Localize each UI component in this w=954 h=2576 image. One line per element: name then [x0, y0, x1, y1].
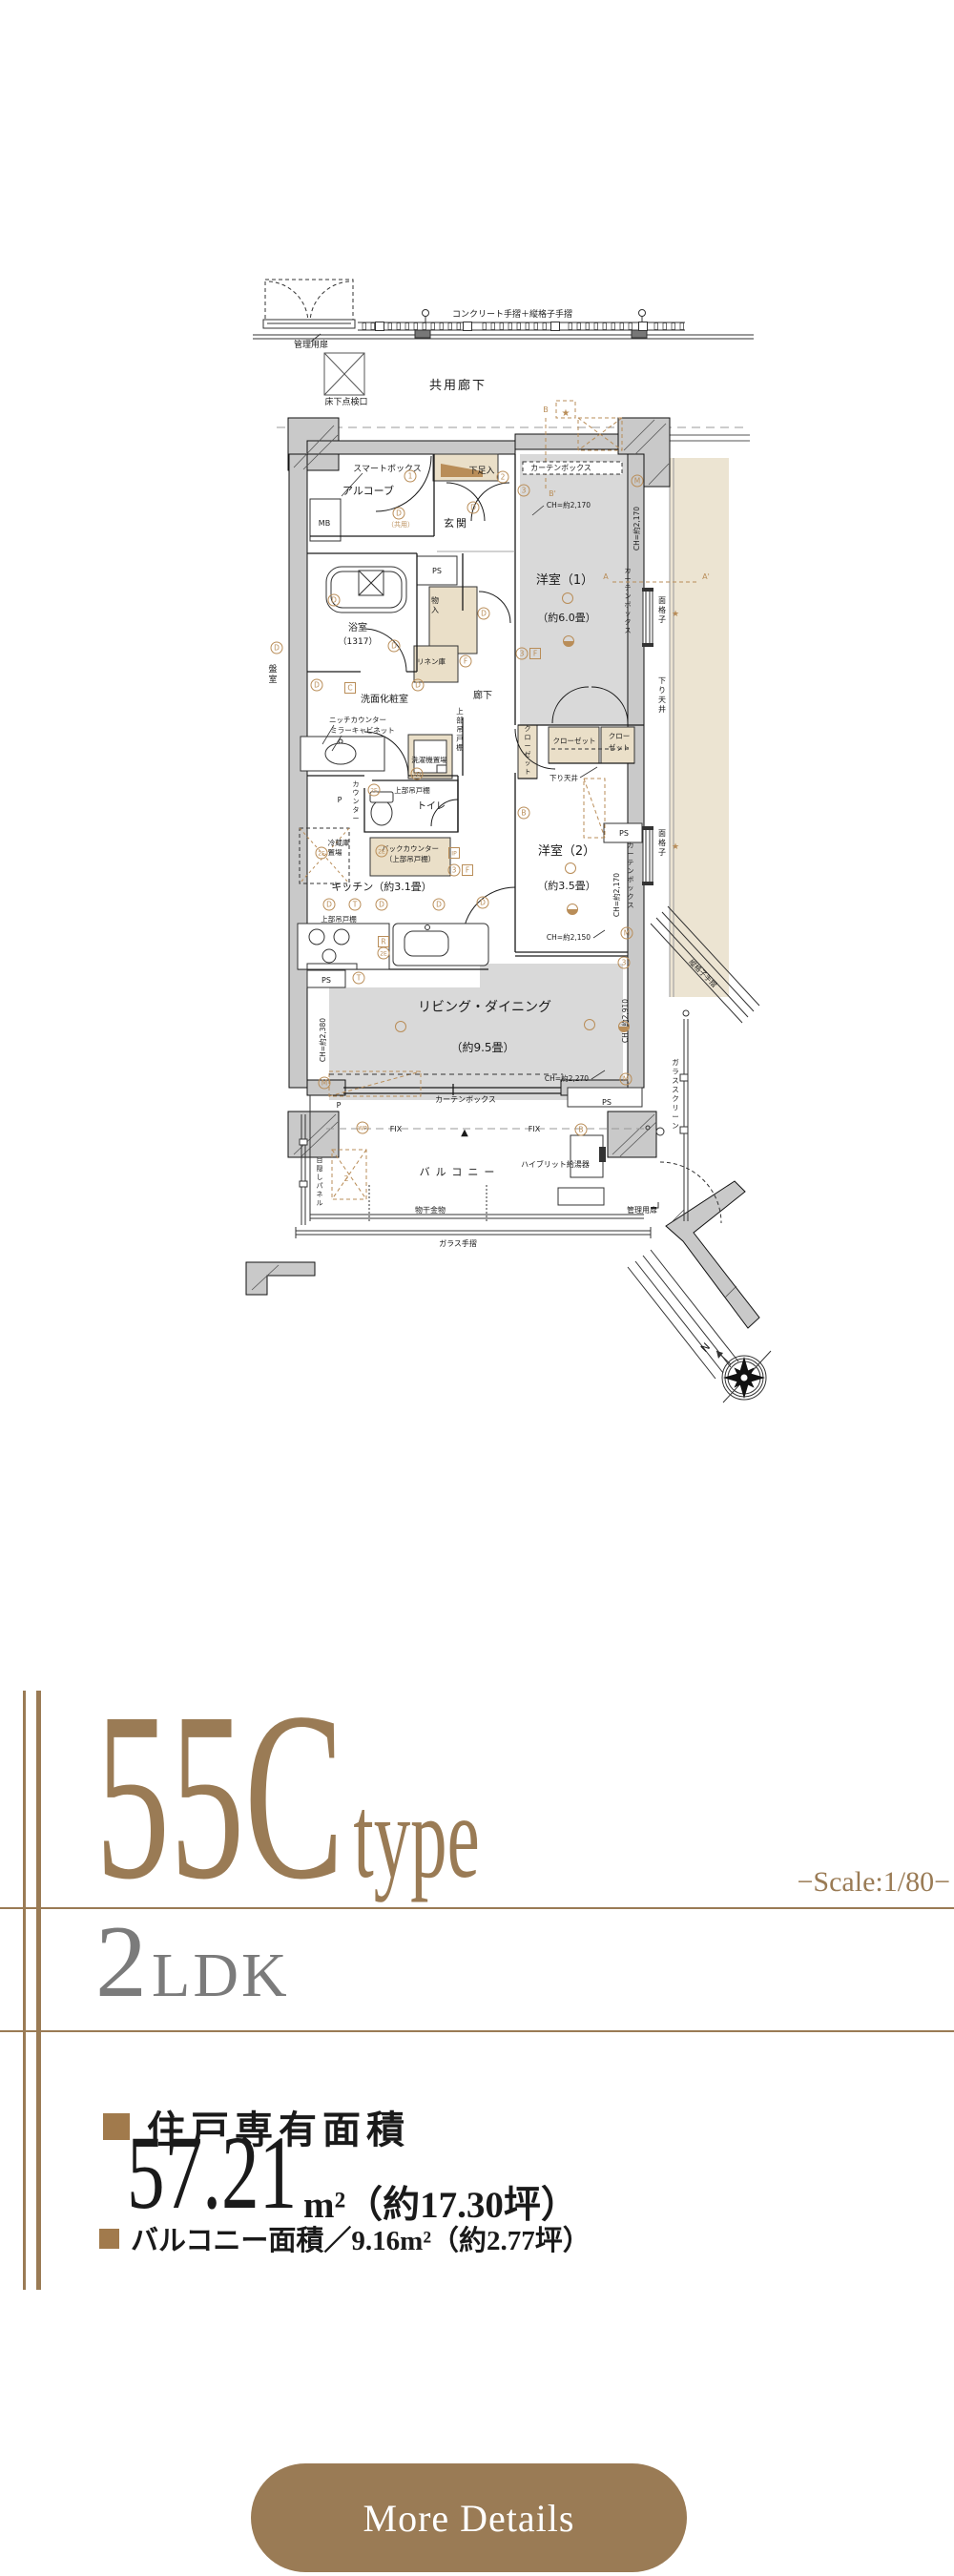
- floorplan-marker: D: [467, 502, 479, 513]
- divider-rule: [0, 2030, 954, 2032]
- floorplan-label: リビング・ダイニング: [418, 1000, 551, 1015]
- floorplan-label: ガラススクリーン: [672, 1057, 679, 1131]
- floorplan-label: （約9.5畳）: [450, 1040, 514, 1054]
- balcony-area-row: バルコニー面積／9.16m²（約2.77坪）: [99, 2218, 591, 2258]
- layout-type-letters: LDK: [152, 1944, 290, 2007]
- floorplan-marker: 1: [404, 470, 416, 482]
- svg-text:1: 1: [408, 472, 413, 481]
- floorplan-label: CH=約2,150: [547, 932, 591, 942]
- floorplan-label: CH=約2,380: [318, 1018, 327, 1062]
- svg-text:2D: 2D: [413, 772, 422, 779]
- svg-text:B: B: [578, 1126, 583, 1134]
- floorplan-label: カーテンボックス: [530, 464, 591, 472]
- floorplan-marker: B: [575, 1124, 587, 1135]
- floorplan-label: 洋室（2）: [538, 843, 595, 859]
- svg-text:D: D: [274, 644, 280, 653]
- floorplan-label: 目隠しパネル: [317, 1156, 323, 1207]
- floorplan-marker: D: [376, 899, 387, 910]
- svg-text:IP: IP: [451, 851, 457, 858]
- square-bullet-icon: [99, 2229, 119, 2249]
- floorplan-label: B': [549, 489, 556, 498]
- floorplan-label: 下足入: [468, 466, 494, 476]
- floorplan-marker: D: [393, 508, 404, 519]
- floorplan-label: ハイブリット給湯器: [521, 1159, 590, 1169]
- floorplan-label: ★: [672, 842, 679, 852]
- decor-vertical-line: [23, 1691, 26, 2290]
- floorplan-label: ★: [562, 408, 570, 419]
- floorplan-label: 管理用扉: [294, 339, 328, 350]
- floorplan-label: CH=約2,910: [620, 999, 630, 1043]
- floorplan-label: 廊下: [473, 689, 492, 701]
- svg-text:F: F: [466, 866, 469, 875]
- floor-plan-page: コンクリート手摺＋縦格子手摺管理用扉床下点検口共用廊下スマートボックスアルコーブ…: [0, 0, 954, 2576]
- svg-text:D: D: [391, 642, 397, 651]
- floorplan-label: 下り天井: [658, 676, 666, 714]
- floorplan-label: 共用廊下: [429, 378, 487, 393]
- svg-text:3: 3: [520, 650, 525, 658]
- layout-type-number: 2: [95, 1911, 147, 2014]
- svg-text:F: F: [464, 657, 467, 666]
- floorplan-marker: WP: [357, 1122, 368, 1133]
- svg-text:D: D: [314, 681, 320, 690]
- layout-type: 2 LDK: [95, 1911, 290, 2014]
- floorplan-label: FIX: [390, 1125, 403, 1133]
- svg-text:D: D: [480, 899, 486, 907]
- svg-text:D: D: [326, 901, 332, 909]
- floorplan-label: カーテンボックス: [435, 1095, 496, 1104]
- svg-text:M: M: [624, 929, 630, 938]
- floorplan-marker: 2E: [316, 847, 327, 859]
- floorplan-label: キッチン（約3.1畳）: [331, 880, 432, 893]
- floorplan-label: 洋室（1）: [536, 572, 593, 588]
- underfloor-inspection-hatch: [324, 353, 364, 395]
- floorplan-label: CH=約2,170: [632, 507, 641, 551]
- floorplan-label: クロー: [609, 732, 631, 740]
- floorplan-marker: D: [311, 679, 322, 691]
- floorplan-label: （上部吊戸棚）: [385, 854, 436, 863]
- svg-text:B: B: [521, 809, 526, 818]
- floorplan-label: ミラーキャビネット: [330, 726, 395, 735]
- floorplan-label: 浴室: [348, 621, 367, 634]
- floorplan-label: （共用）: [387, 520, 414, 529]
- floorplan-marker: [566, 863, 576, 874]
- railing-ticks: [363, 322, 684, 331]
- floorplan-marker: F: [463, 865, 473, 876]
- floorplan-label: PS: [321, 976, 331, 985]
- floorplan-marker: [568, 904, 578, 915]
- svg-text:R: R: [381, 938, 385, 946]
- svg-text:2E: 2E: [380, 951, 387, 958]
- floorplan-label: カーテンボックス: [625, 567, 632, 634]
- floorplan-label: 上部吊戸棚: [456, 707, 464, 752]
- floorplan-label: 下り天井: [550, 773, 578, 782]
- svg-text:D: D: [396, 509, 402, 518]
- svg-text:C: C: [347, 684, 352, 693]
- floorplan-label: 玄関: [444, 516, 468, 530]
- floorplan-label: N: [698, 1340, 713, 1355]
- floorplan-label: ガラス手摺: [439, 1238, 477, 1248]
- svg-text:3: 3: [452, 866, 457, 875]
- floorplan-marker: D: [412, 679, 424, 691]
- floorplan-label: 冷蔵庫: [328, 838, 350, 847]
- floorplan-label: アルコーブ: [342, 484, 394, 497]
- floorplan-label: A: [603, 572, 609, 581]
- svg-text:T: T: [352, 901, 358, 909]
- floorplan-label: 面格子: [658, 596, 666, 624]
- floorplan-marker: B: [518, 807, 529, 819]
- svg-text:D: D: [470, 504, 476, 512]
- svg-text:M: M: [623, 1075, 629, 1084]
- svg-text:2: 2: [501, 473, 506, 482]
- floor-plan: コンクリート手摺＋縦格子手摺管理用扉床下点検口共用廊下スマートボックスアルコーブ…: [219, 267, 792, 1431]
- floorplan-label: P: [338, 796, 342, 804]
- floorplan-label: 床下点検口: [324, 396, 367, 407]
- floorplan-marker: T: [349, 899, 361, 910]
- svg-text:2E: 2E: [378, 849, 385, 856]
- svg-text:D: D: [481, 610, 487, 618]
- floorplan-label: CH=約2,170: [612, 873, 621, 917]
- floorplan-label: P: [337, 1101, 342, 1110]
- svg-text:D: D: [436, 901, 442, 909]
- exterior-strip: [670, 458, 729, 997]
- floorplan-label: PS: [602, 1098, 612, 1107]
- floorplan-label: ★: [672, 610, 679, 619]
- floorplan-label: 2: [343, 1174, 348, 1183]
- floorplan-label: バックカウンター: [382, 844, 439, 853]
- svg-text:3: 3: [522, 487, 527, 495]
- floorplan-label: PS: [619, 829, 629, 838]
- bedroom1-floor: [520, 454, 628, 725]
- floorplan-label: 洗濯機置場: [411, 755, 447, 764]
- floor-plan-drawing: コンクリート手摺＋縦格子手摺管理用扉床下点検口共用廊下スマートボックスアルコーブ…: [219, 267, 792, 1431]
- floorplan-label: クローゼット: [553, 736, 596, 745]
- balcony-area-text: バルコニー面積／9.16m²（約2.77坪）: [131, 2218, 591, 2258]
- floorplan-label: リネン庫: [417, 656, 446, 666]
- floorplan-label: MB: [319, 519, 330, 528]
- svg-text:WP: WP: [358, 1126, 367, 1132]
- floorplan-label: カーテンボックス: [628, 841, 634, 909]
- scale-note: −Scale:1/80−: [798, 1866, 950, 1899]
- svg-text:F: F: [533, 650, 537, 658]
- svg-text:3: 3: [622, 959, 627, 967]
- decor-vertical-line: [36, 1691, 41, 2290]
- floorplan-label: （約6.0畳）: [537, 611, 596, 624]
- svg-text:D: D: [379, 901, 384, 909]
- svg-text:T: T: [356, 974, 362, 983]
- floorplan-label: トイレ: [417, 801, 446, 812]
- floorplan-label: CH=約2,270: [545, 1073, 589, 1083]
- water-heater-vent: [599, 1147, 606, 1162]
- floorplan-label: コンクリート手摺＋縦格子手摺: [452, 308, 572, 320]
- compass-icon: [716, 1351, 771, 1402]
- floorplan-label: クローゼット: [525, 725, 531, 776]
- floorplan-label: バルコニー: [420, 1166, 501, 1178]
- plan-title: 55C type: [95, 1675, 480, 1916]
- floorplan-label: 洗面化粧室: [361, 693, 408, 705]
- floorplan-label: 上部吊戸棚: [321, 914, 357, 924]
- floorplan-label: （約3.5畳）: [537, 879, 596, 892]
- floorplan-label: A': [702, 572, 710, 581]
- floorplan-label: FIX: [529, 1125, 541, 1133]
- floorplan-label: 上部吊戸棚: [394, 785, 430, 795]
- more-details-button[interactable]: More Details: [251, 2463, 687, 2572]
- floorplan-marker: T: [353, 972, 364, 984]
- floorplan-label: （1317）: [339, 636, 378, 647]
- floorplan-marker: D: [478, 608, 489, 619]
- floorplan-label: ゼット: [609, 742, 631, 752]
- floorplan-label: ニッチカウンター: [329, 716, 386, 724]
- svg-text:2E: 2E: [370, 788, 378, 795]
- floorplan-marker: D: [271, 642, 282, 654]
- floorplan-marker: F: [460, 655, 471, 667]
- svg-text:M: M: [634, 477, 640, 486]
- svg-text:D: D: [415, 681, 421, 690]
- floorplan-label: PS: [432, 567, 442, 575]
- floorplan-marker: D: [323, 899, 335, 910]
- floorplan-label: 面格子: [658, 829, 666, 857]
- floorplan-marker: C: [345, 683, 356, 694]
- floorplan-label: ▲: [461, 1128, 468, 1138]
- square-bullet-icon: [103, 2113, 130, 2140]
- svg-text:D: D: [331, 596, 337, 605]
- floorplan-label: 置場: [328, 847, 342, 857]
- area-value: 57.21: [127, 2120, 297, 2225]
- floorplan-marker: 2: [497, 471, 508, 483]
- floorplan-label: CH=約2,170: [547, 500, 591, 509]
- svg-text:2E: 2E: [318, 851, 325, 858]
- svg-text:M: M: [321, 1079, 327, 1088]
- floorplan-marker: D: [433, 899, 445, 910]
- floorplan-marker: 2E: [368, 784, 380, 796]
- floorplan-label: 物干金物: [415, 1205, 446, 1215]
- floorplan-label: 盤室: [268, 663, 277, 685]
- floorplan-label: B: [543, 405, 549, 414]
- floorplan-label: 管理用扉: [627, 1205, 657, 1215]
- unit-name: 55C: [95, 1675, 343, 1916]
- floorplan-label: カウンター: [353, 780, 360, 822]
- type-suffix: type: [353, 1778, 479, 1897]
